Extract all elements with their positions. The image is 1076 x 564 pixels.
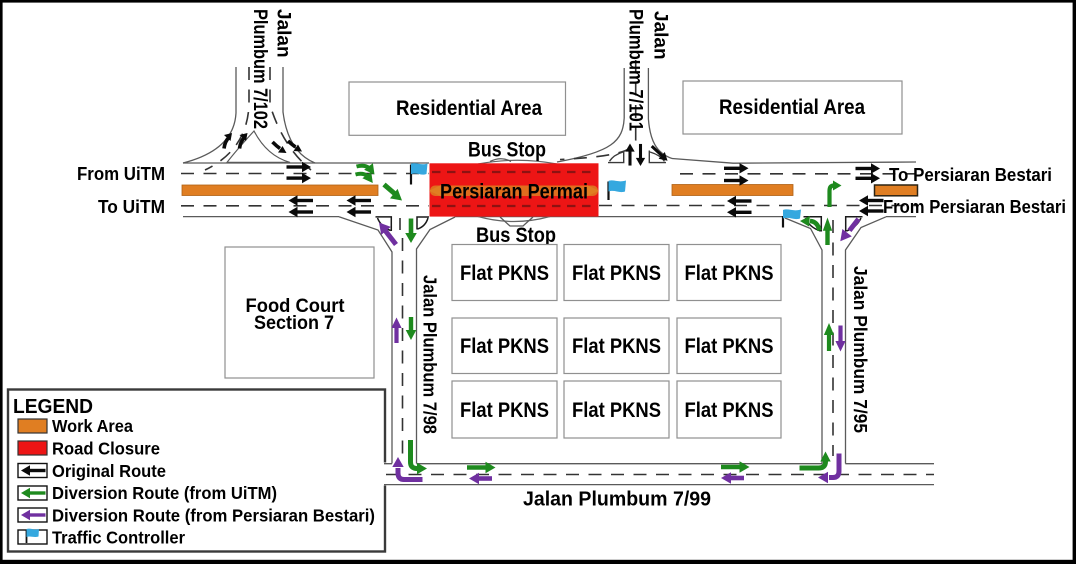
svg-text:Traffic Controller: Traffic Controller: [52, 528, 185, 548]
svg-text:Flat PKNS: Flat PKNS: [460, 398, 549, 422]
svg-text:Flat PKNS: Flat PKNS: [460, 334, 549, 358]
svg-text:Jalan Plumbum 7/98: Jalan Plumbum 7/98: [420, 275, 441, 434]
svg-text:To Persiaran Bestari: To Persiaran Bestari: [889, 164, 1052, 185]
svg-text:LEGEND: LEGEND: [13, 396, 93, 418]
svg-text:Section 7: Section 7: [254, 312, 334, 334]
svg-text:Plumbum 7/101: Plumbum 7/101: [625, 9, 646, 131]
svg-text:Flat PKNS: Flat PKNS: [572, 398, 661, 422]
svg-text:Diversion Route (from Persiara: Diversion Route (from Persiaran Bestari): [52, 506, 375, 526]
svg-text:From UiTM: From UiTM: [77, 163, 165, 184]
svg-text:Flat PKNS: Flat PKNS: [572, 261, 661, 285]
svg-text:Jalan: Jalan: [273, 9, 294, 58]
svg-text:Work Area: Work Area: [52, 416, 133, 436]
svg-text:Jalan: Jalan: [650, 11, 671, 60]
svg-text:Original Route: Original Route: [52, 461, 166, 481]
svg-text:Jalan Plumbum 7/95: Jalan Plumbum 7/95: [850, 266, 871, 433]
svg-text:Bus Stop: Bus Stop: [476, 224, 556, 247]
svg-text:Plumbum 7/102: Plumbum 7/102: [249, 9, 270, 129]
svg-text:Diversion Route (from UiTM): Diversion Route (from UiTM): [52, 483, 277, 503]
svg-text:Flat PKNS: Flat PKNS: [572, 334, 661, 358]
svg-text:Flat PKNS: Flat PKNS: [685, 334, 774, 358]
svg-text:Flat PKNS: Flat PKNS: [460, 261, 549, 285]
svg-text:Flat PKNS: Flat PKNS: [685, 261, 774, 285]
svg-text:Residential Area: Residential Area: [396, 97, 542, 120]
svg-text:From Persiaran Bestari: From Persiaran Bestari: [883, 196, 1066, 217]
svg-text:Residential Area: Residential Area: [719, 96, 865, 119]
svg-text:Flat PKNS: Flat PKNS: [685, 398, 774, 422]
svg-text:To UiTM: To UiTM: [98, 196, 165, 217]
svg-text:Road Closure: Road Closure: [52, 439, 160, 459]
svg-text:Persiaran Permai: Persiaran Permai: [440, 181, 588, 204]
svg-text:Jalan Plumbum 7/99: Jalan Plumbum 7/99: [523, 489, 711, 511]
svg-text:Bus Stop: Bus Stop: [468, 139, 546, 162]
